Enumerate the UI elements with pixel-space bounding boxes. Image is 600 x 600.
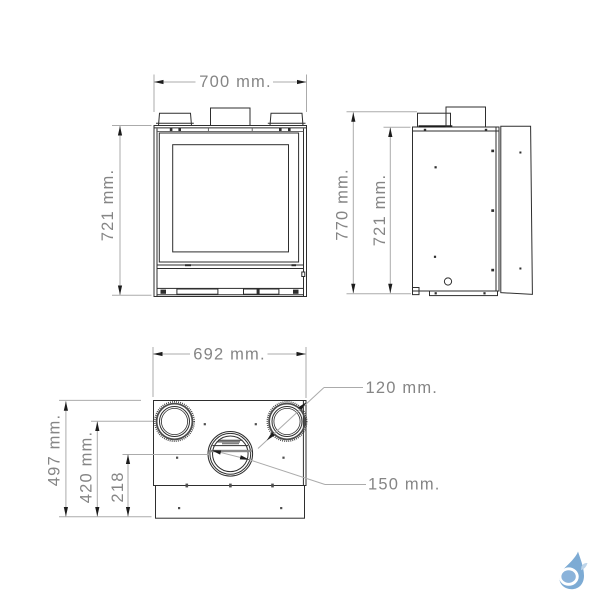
svg-text:692 mm.: 692 mm. [193, 346, 266, 364]
svg-text:700 mm.: 700 mm. [199, 73, 272, 91]
svg-text:150 mm.: 150 mm. [368, 476, 441, 494]
svg-text:120 mm.: 120 mm. [366, 379, 439, 397]
svg-text:770 mm.: 770 mm. [333, 168, 351, 241]
svg-text:420 mm.: 420 mm. [78, 431, 96, 504]
svg-text:721 mm.: 721 mm. [371, 174, 389, 247]
svg-text:497 mm.: 497 mm. [46, 414, 64, 487]
svg-text:721 mm.: 721 mm. [99, 169, 117, 242]
svg-text:218: 218 [109, 471, 127, 502]
